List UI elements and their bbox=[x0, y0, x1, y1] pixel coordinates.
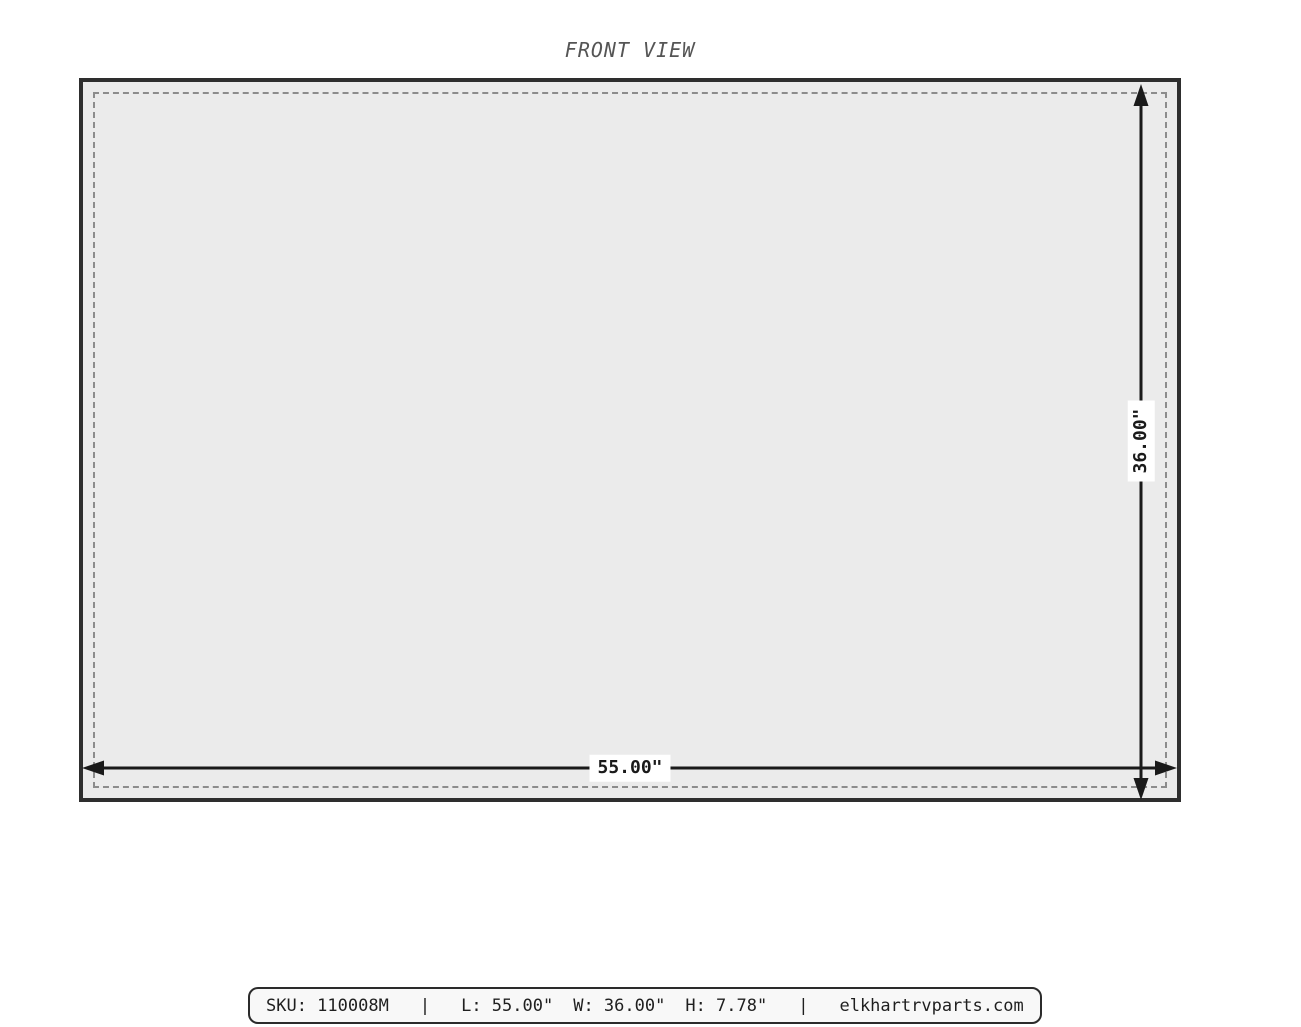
footer-width: W: 36.00" bbox=[573, 996, 665, 1016]
footer-website: elkhartrvparts.com bbox=[839, 996, 1023, 1016]
footer-length: L: 55.00" bbox=[461, 996, 553, 1016]
width-dimension-label: 55.00" bbox=[589, 755, 670, 782]
panel-outline bbox=[79, 78, 1181, 802]
view-title: FRONT VIEW bbox=[79, 38, 1181, 62]
footer-separator: | bbox=[420, 996, 430, 1016]
panel-dashed-inset bbox=[93, 92, 1167, 788]
footer-sku: SKU: 110008M bbox=[266, 996, 389, 1016]
front-view-diagram: FRONT VIEW 55.00" 36.00" SKU: 110008M | … bbox=[0, 0, 1301, 1027]
footer-info-bar: SKU: 110008M | L: 55.00" W: 36.00" H: 7.… bbox=[248, 987, 1042, 1024]
footer-height: H: 7.78" bbox=[685, 996, 767, 1016]
height-dimension-label: 36.00" bbox=[1128, 400, 1155, 481]
footer-separator: | bbox=[798, 996, 808, 1016]
